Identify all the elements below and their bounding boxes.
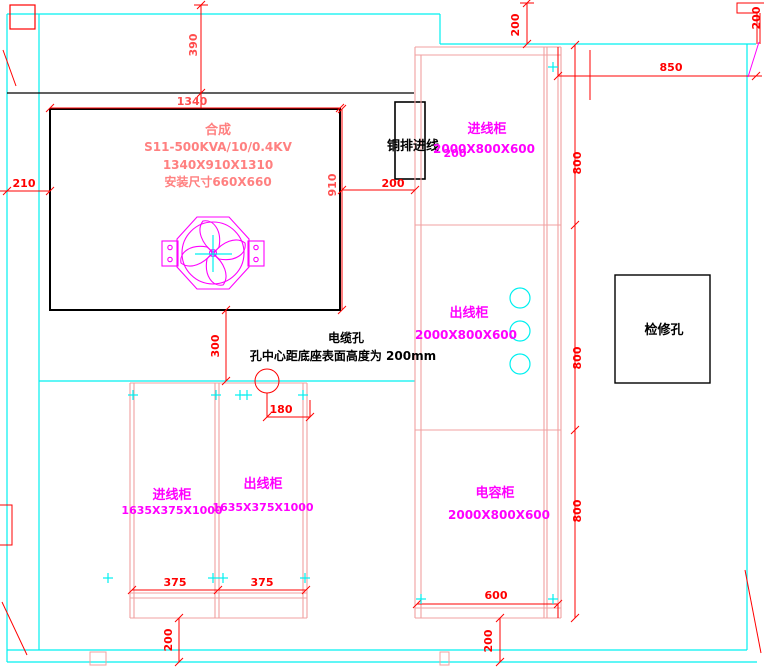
cable-hole-label: 电缆孔 <box>328 330 364 345</box>
dim-800-bottom: 800 <box>571 499 584 522</box>
dim-180: 180 <box>270 403 293 416</box>
dim-850: 850 <box>660 61 683 74</box>
transformer-model: S11-500KVA/10/0.4KV <box>144 140 292 154</box>
incoming-cabinet-label: 进线柜 <box>467 121 506 137</box>
dim-210: 210 <box>13 177 36 190</box>
dim-800-top: 800 <box>571 151 584 174</box>
drawing-surface: 合成 S11-500KVA/10/0.4KV 1340X910X1310 安装尺… <box>0 0 764 667</box>
wall-lines <box>7 14 757 662</box>
bottom-outgoing-cabinet-size: 1635X375X1000 <box>212 501 314 514</box>
dim-200-gap: 200 <box>382 177 405 190</box>
dim-200-top-right: 200 <box>750 6 763 29</box>
dim-200-top: 200 <box>509 13 522 36</box>
fan-center-crosshair <box>195 235 232 272</box>
cad-drawing-electrical-room-plan: 合成 S11-500KVA/10/0.4KV 1340X910X1310 安装尺… <box>0 0 764 667</box>
dim-600: 600 <box>485 589 508 602</box>
cable-hole-note: 孔中心距底座表面高度为 200mm <box>250 348 436 363</box>
transformer-mount-size: 安装尺寸660X660 <box>164 174 271 189</box>
dim-800-mid: 800 <box>571 346 584 369</box>
dim-200-bottom-right: 200 <box>482 629 495 652</box>
capacitor-cabinet-label: 电容柜 <box>475 485 514 501</box>
dim-375-left: 375 <box>164 576 187 589</box>
dim-375-right: 375 <box>251 576 274 589</box>
dim-910: 910 <box>326 173 339 196</box>
busbar-entry-label: 铜排进线 <box>386 138 439 154</box>
dim-390: 390 <box>187 33 200 56</box>
dim-200-bottom-left: 200 <box>162 628 175 651</box>
inspection-hole-label: 检修孔 <box>644 322 683 338</box>
incoming-cabinet-size: 2000X800X600 <box>433 142 535 156</box>
bottom-incoming-cabinet-label: 进线柜 <box>152 487 191 503</box>
outgoing-cabinet-label: 出线柜 <box>449 305 488 321</box>
transformer-size: 1340X910X1310 <box>163 158 273 172</box>
capacitor-cabinet-size: 2000X800X600 <box>448 508 550 522</box>
transformer-title: 合成 <box>205 122 231 138</box>
dim-300: 300 <box>209 334 222 357</box>
outgoing-cabinet-size: 2000X800X600 <box>415 328 517 342</box>
bottom-incoming-cabinet-size: 1635X375X1000 <box>121 504 223 517</box>
dim-1340: 1340 <box>177 95 208 108</box>
bottom-outgoing-cabinet-label: 出线柜 <box>243 476 282 492</box>
